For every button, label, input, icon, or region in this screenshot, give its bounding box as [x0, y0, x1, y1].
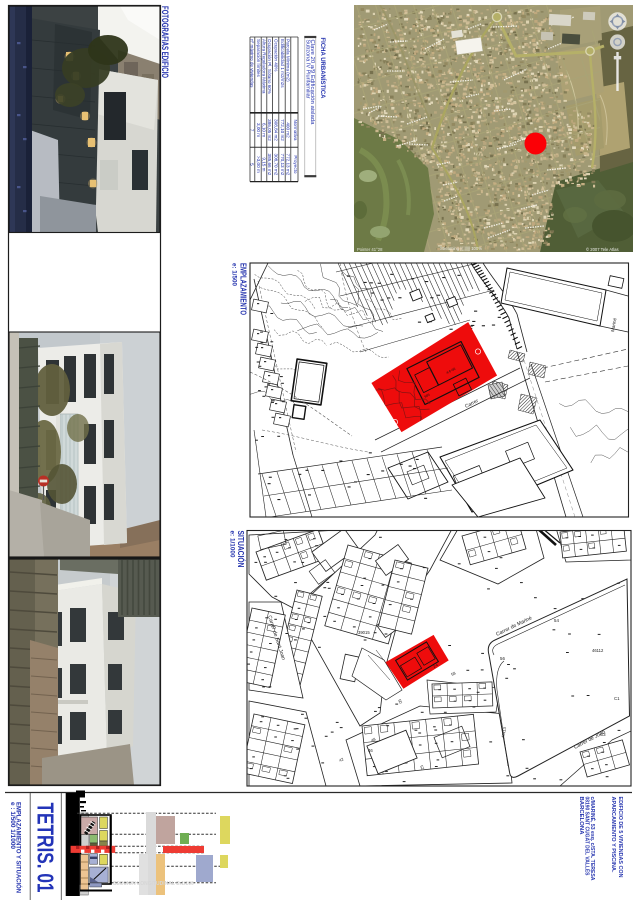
svg-text:C1: C1 — [614, 696, 620, 701]
svg-text:Ocupación Pl. Sótano 60%: Ocupación Pl. Sótano 60% — [267, 39, 272, 94]
svg-text:Normativa: Normativa — [293, 120, 298, 141]
svg-text:772,10 m2: 772,10 m2 — [280, 119, 285, 141]
svg-text:© 2007 Tele Atlas: © 2007 Tele Atlas — [586, 247, 619, 252]
svg-text:Streaming ||||||||| 100%: Streaming ||||||||| 100% — [440, 246, 482, 251]
svg-text:9,15 m: 9,15 m — [262, 157, 267, 171]
svg-text:e: 1/1000: e: 1/1000 — [228, 531, 235, 558]
svg-text:6,10 m: 6,10 m — [262, 123, 267, 137]
svg-text:39015: 39015 — [358, 630, 370, 635]
svg-text:SECCION LONGITUDINAL E:1/100: SECCION LONGITUDINAL E:1/100 — [113, 881, 194, 887]
svg-text:e : 1/500 1/1000: e : 1/500 1/1000 — [9, 802, 16, 850]
svg-text:BARCELONA: BARCELONA — [578, 797, 584, 835]
svg-text:386,05 m2: 386,05 m2 — [267, 119, 272, 141]
svg-text:EDIFICIO DE 5 VIVIENDAS CON: EDIFICIO DE 5 VIVIENDAS CON — [617, 797, 623, 878]
svg-text:Edificabilidad 1 m2/m2s: Edificabilidad 1 m2/m2s — [280, 39, 285, 88]
svg-text:FOTOGRAFIAS EDIFICIO: FOTOGRAFIAS EDIFICIO — [160, 6, 170, 78]
svg-text:Separación límites: Separación límites — [256, 39, 261, 77]
svg-text:Subzona IV Plurifamiliar: Subzona IV Plurifamiliar — [304, 40, 310, 99]
svg-text:46: 46 — [368, 748, 373, 753]
svg-text:3,00 m: 3,00 m — [256, 123, 261, 137]
svg-text:308,70 m2: 308,70 m2 — [274, 154, 279, 176]
svg-text:e: 1/500: e: 1/500 — [230, 263, 237, 286]
svg-text:400 m2: 400 m2 — [286, 122, 291, 138]
svg-text:770,13 m2: 770,13 m2 — [280, 154, 285, 176]
svg-text:nº máximo de viviendas: nº máximo de viviendas — [250, 39, 255, 88]
svg-text:Altura Reguladora Máxima: Altura Reguladora Máxima — [262, 39, 267, 94]
svg-text:772,13 m2: 772,13 m2 — [286, 154, 291, 176]
svg-text:TETRIS. 01: TETRIS. 01 — [33, 803, 59, 893]
svg-text:Pointer 41°28: Pointer 41°28 — [357, 247, 383, 252]
svg-text:385,66 m2: 385,66 m2 — [267, 154, 272, 176]
svg-text:54: 54 — [554, 618, 559, 623]
svg-text:SITUACIÓN: SITUACIÓN — [236, 531, 247, 568]
svg-text:308,84 m2: 308,84 m2 — [274, 119, 279, 141]
svg-text:56: 56 — [500, 656, 505, 661]
svg-text:46112: 46112 — [592, 648, 604, 653]
svg-text:Proyecto: Proyecto — [293, 155, 298, 174]
svg-text:APARCAMIENTO Y PISCINA.: APARCAMIENTO Y PISCINA. — [610, 797, 616, 873]
svg-text:>3,00 m: >3,00 m — [256, 156, 261, 173]
svg-text:7: 7 — [250, 129, 255, 132]
svg-text:FICHA URBANÍSTICA: FICHA URBANÍSTICA — [319, 38, 328, 99]
svg-text:EMPLAZAMIENTO: EMPLAZAMIENTO — [239, 263, 249, 315]
svg-text:Parcela Mínima (m2): Parcela Mínima (m2) — [286, 39, 291, 82]
svg-text:C3: C3 — [600, 732, 606, 737]
svg-text:Ocupación 40%: Ocupación 40% — [274, 39, 279, 71]
svg-text:5: 5 — [250, 163, 255, 166]
